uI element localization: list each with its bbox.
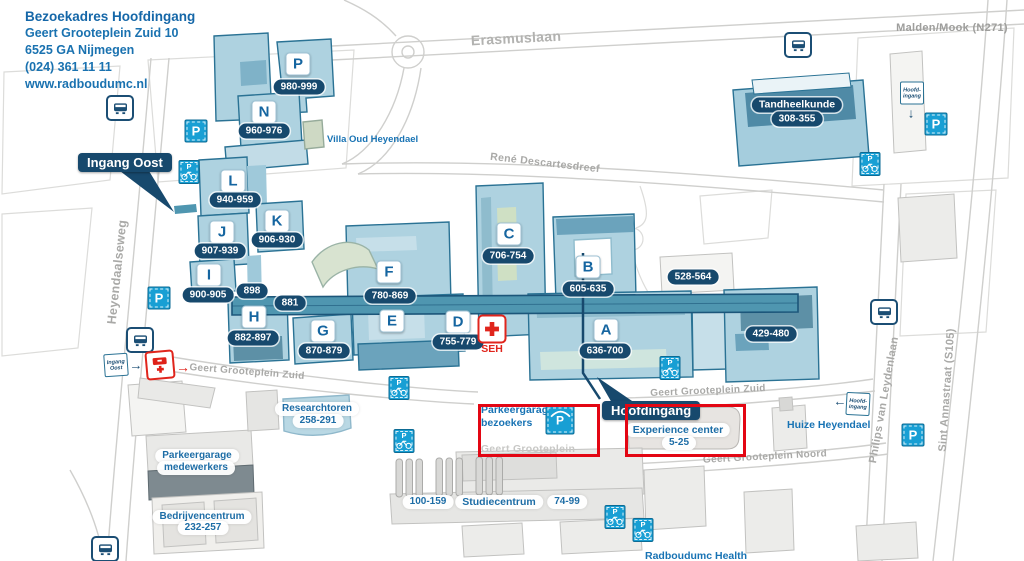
- building-badge-b: B: [576, 256, 601, 279]
- seh-label: SEH: [481, 343, 503, 355]
- range-pill-h: 882-897: [228, 331, 279, 346]
- bicycle-glyph: [396, 439, 413, 449]
- parking-icon-letter: P: [192, 124, 201, 139]
- mini-sign-line2: ingang: [849, 404, 867, 411]
- range-pill-881: 881: [275, 296, 306, 311]
- red-cross-glyph: [484, 321, 501, 338]
- bicycle-parking-icon: P: [605, 505, 626, 529]
- range-pill-a: 636-700: [580, 344, 631, 359]
- range-pill-f: 780-869: [365, 289, 416, 304]
- building-badge-h: H: [242, 306, 267, 329]
- range-pill-n: 960-976: [239, 124, 290, 139]
- address-street: Geert Grooteplein Zuid 10: [25, 25, 195, 42]
- bicycle-parking-icon: P: [860, 152, 881, 176]
- bicycle-glyph: [862, 162, 879, 172]
- parking-icon-letter: P: [932, 117, 941, 132]
- bus-stop-icon: [784, 32, 812, 58]
- emergency-cross-icon: [478, 315, 507, 344]
- range-pill-j: 907-939: [195, 244, 246, 259]
- parkeergarage-bezoekers-line1: Parkeergarage: [481, 404, 554, 417]
- parking-icon: P: [925, 113, 948, 136]
- mini-sign-line2: Oost: [110, 365, 123, 372]
- hoofdingang-flag: Hoofdingang: [602, 401, 700, 420]
- parking-icon-letter: P: [396, 379, 401, 386]
- bus-glyph: [98, 543, 113, 556]
- parking-icon-letter: P: [667, 359, 672, 366]
- bus-stop-icon: [91, 536, 119, 561]
- building-badge-c: C: [497, 223, 522, 246]
- entrance-arrow-right: →: [130, 358, 143, 373]
- bus-stop-icon: [870, 299, 898, 325]
- building-badge-f: F: [377, 261, 402, 284]
- parking-garage-icon: P: [546, 406, 575, 435]
- parkeergarage-medewerkers-pill-2: medewerkers: [157, 461, 235, 475]
- parking-icon-letter: P: [640, 521, 645, 528]
- bus-glyph: [133, 334, 148, 347]
- range-pill-528: 528-564: [668, 270, 719, 285]
- parking-icon-letter: P: [556, 415, 564, 427]
- bus-glyph: [113, 102, 128, 115]
- parkeergarage-bezoekers-line2: bezoekers: [481, 417, 554, 430]
- ambulance-arrow-right: →: [176, 359, 190, 375]
- building-badge-p: P: [286, 53, 311, 76]
- range-pill-l: 940-959: [210, 193, 261, 208]
- mini-sign-arrow-left: ←: [834, 394, 847, 409]
- hoofdingang-mini-sign-right: Hoofd- ingang: [845, 392, 870, 416]
- bicycle-glyph: [181, 170, 198, 180]
- bus-glyph: [791, 39, 806, 52]
- studiecentrum-pill: Studiecentrum: [455, 495, 543, 509]
- bicycle-glyph: [635, 528, 652, 538]
- range-pill-b: 605-635: [563, 282, 614, 297]
- parking-icon: P: [185, 120, 208, 143]
- ambulance-icon: [144, 349, 175, 380]
- parking-icon-letter: P: [909, 428, 918, 443]
- experience-center-range-pill: 5-25: [662, 436, 696, 450]
- range-pill-c: 706-754: [483, 249, 534, 264]
- region-malden-mook: Malden/Mook (N271): [896, 22, 1008, 34]
- building-badge-i: I: [197, 264, 222, 287]
- address-title: Bezoekadres Hoofdingang: [25, 8, 195, 25]
- villa-oud-heyendael-label: Villa Oud Heyendael: [327, 134, 418, 145]
- huize-heyendael-label: Huize Heyendael: [787, 419, 870, 431]
- ingang-oost-mini-sign: Ingang Oost: [103, 353, 129, 378]
- bicycle-parking-icon: P: [389, 376, 410, 400]
- tandheelkunde-name-pill: Tandheelkunde: [752, 98, 842, 113]
- range-pill-p: 980-999: [274, 80, 325, 95]
- range-pill-i: 900-905: [183, 288, 234, 303]
- bicycle-parking-icon: P: [633, 518, 654, 542]
- street-geert-grooteplein: Geert Grooteplein: [481, 443, 575, 455]
- range-pill-429: 429-480: [746, 327, 797, 342]
- radboudumc-health-label: Radboudumc Health: [645, 550, 747, 561]
- address-website: www.radboudumc.nl: [25, 76, 195, 93]
- ingang-oost-flag: Ingang Oost: [78, 153, 172, 172]
- parking-icon: P: [902, 424, 925, 447]
- parking-icon-letter: P: [401, 432, 406, 439]
- range-pill-g: 870-879: [299, 344, 350, 359]
- ambulance-glyph: [150, 355, 171, 376]
- range-pill-k: 906-930: [252, 233, 303, 248]
- building-badge-g: G: [311, 320, 336, 343]
- building-badge-k: K: [265, 210, 290, 233]
- address-block: Bezoekadres Hoofdingang Geert Grooteplei…: [25, 8, 195, 93]
- building-badge-j: J: [210, 221, 235, 244]
- hoofdingang-mini-sign-top: Hoofd- ingang: [900, 82, 924, 105]
- bus-stop-icon: [126, 327, 154, 353]
- address-city: 6525 GA Nijmegen: [25, 42, 195, 59]
- bicycle-glyph: [391, 386, 408, 396]
- bedrijvencentrum-range-pill: 232-257: [178, 521, 229, 535]
- researchtoren-range-pill: 258-291: [293, 414, 344, 428]
- address-phone: (024) 361 11 11: [25, 59, 195, 76]
- bicycle-parking-icon: P: [660, 356, 681, 380]
- bus-stop-icon: [106, 95, 134, 121]
- bicycle-parking-icon: P: [179, 160, 200, 184]
- building-badge-n: N: [252, 101, 277, 124]
- building-badge-d: D: [446, 311, 471, 334]
- mini-sign-arrow-down: ↓: [908, 106, 915, 121]
- building-badge-a: A: [594, 319, 619, 342]
- tandheelkunde-range-pill: 308-355: [772, 112, 823, 127]
- bicycle-parking-icon: P: [394, 429, 415, 453]
- campus-map: Bezoekadres Hoofdingang Geert Grooteplei…: [0, 0, 1024, 561]
- bicycle-glyph: [607, 515, 624, 525]
- mini-sign-line2: ingang: [903, 93, 921, 99]
- parking-icon-letter: P: [186, 163, 191, 170]
- bus-glyph: [877, 306, 892, 319]
- range-pill-74: 74-99: [547, 495, 587, 509]
- parkeergarage-bezoekers-label: Parkeergarage bezoekers: [481, 404, 554, 430]
- range-pill-d: 755-779: [433, 335, 484, 350]
- parking-icon-letter: P: [867, 155, 872, 162]
- bicycle-glyph: [662, 366, 679, 376]
- building-badge-e: E: [380, 310, 405, 333]
- corridor-band: [232, 294, 798, 315]
- building-badge-l: L: [221, 170, 246, 193]
- parking-icon: P: [148, 287, 171, 310]
- range-pill-898: 898: [237, 284, 268, 299]
- parking-icon-letter: P: [612, 508, 617, 515]
- range-pill-100: 100-159: [403, 495, 454, 509]
- experience-center-name-pill: Experience center: [626, 423, 730, 437]
- parking-icon-letter: P: [155, 291, 164, 306]
